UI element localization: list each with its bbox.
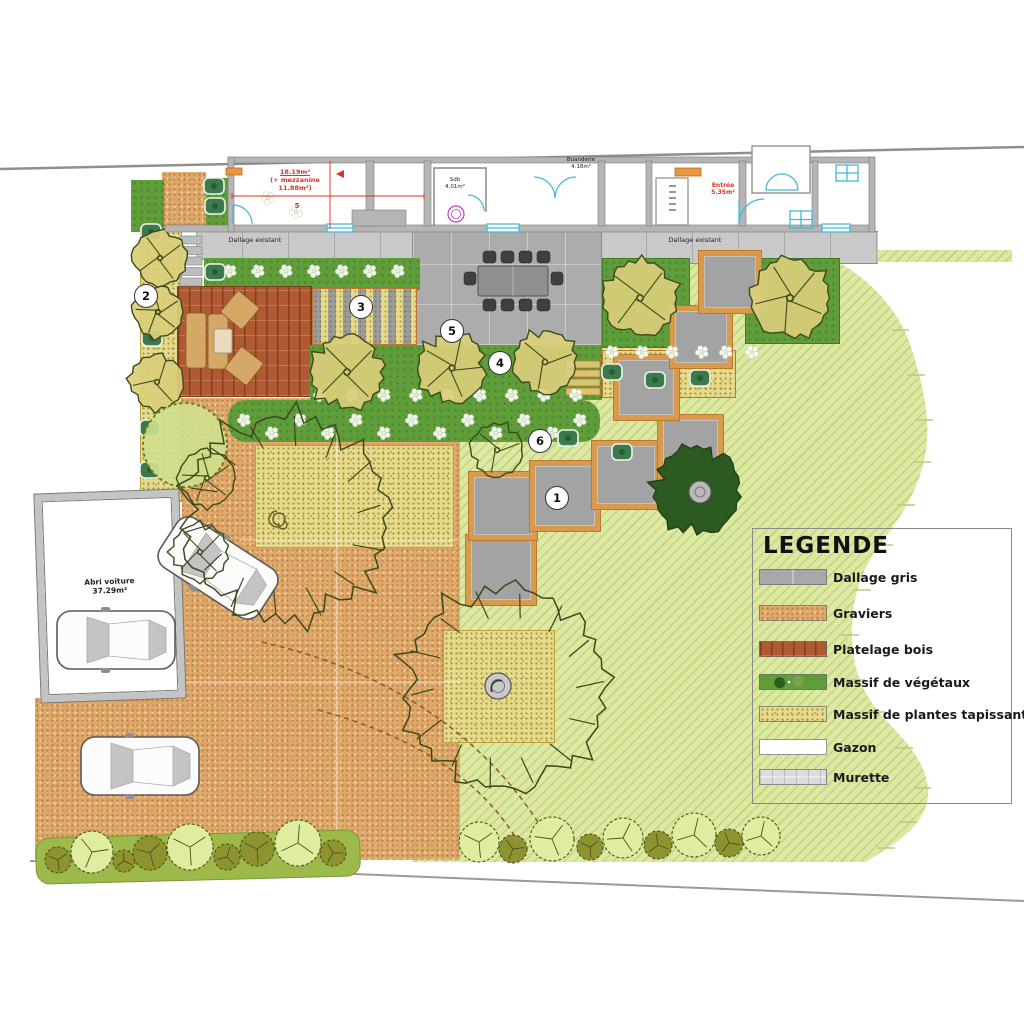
gazon-swatch: [759, 739, 827, 755]
legend-item-murette: Murette: [759, 766, 889, 788]
existing-paving-text-right: Dallage existant: [645, 237, 745, 245]
tree-spike: [569, 640, 589, 656]
plan-shape: [550, 431, 554, 435]
tree-spike: [274, 590, 276, 614]
legend-label: Platelage bois: [833, 642, 933, 657]
legend-panel: LEGENDE Dallage gris Graviers Platelage …: [752, 528, 1012, 804]
porch-bay: [752, 146, 810, 193]
tree-spike: [250, 427, 263, 449]
legend-item-platelage: Platelage bois: [759, 638, 933, 660]
plan-shape: [326, 431, 330, 435]
plan-shape: [414, 393, 418, 397]
flower-icon: [489, 427, 502, 440]
plan-shape: [578, 418, 582, 422]
flower-icon: [573, 414, 586, 427]
existing-paving-text-left: Dallage existant: [205, 237, 305, 245]
feather-tree-icon: [143, 403, 227, 487]
toilet-symbol: [448, 206, 464, 222]
closet: [656, 178, 688, 225]
platelage-swatch: [759, 641, 827, 657]
tree-spike: [476, 591, 489, 618]
tree-spike: [576, 681, 604, 687]
marker-1: 1: [545, 486, 569, 510]
entry-area: 5.35m²: [699, 189, 747, 196]
legend-label: Dallage gris: [833, 570, 917, 585]
tree-spike: [358, 505, 381, 513]
plan-shape: [510, 393, 514, 397]
legend-item-graviers: Graviers: [759, 602, 892, 624]
vegetaux-swatch: [759, 674, 827, 690]
toilet-symbol-inner: [452, 210, 461, 219]
flower-icon: [261, 192, 274, 205]
bush-core: [652, 377, 658, 383]
tree-icon: [513, 330, 577, 395]
legend-label: Massif de végétaux: [833, 675, 970, 690]
room-main-label: 18.19m² (+ mezzanine 11.88m²): [255, 169, 335, 192]
murette-swatch: [759, 769, 827, 785]
deck-furniture: [186, 290, 264, 385]
tree-spike: [353, 545, 384, 551]
car-icon: [151, 508, 286, 628]
bush-core: [212, 269, 218, 275]
tree-branch: [497, 444, 520, 453]
plan-shape: [494, 431, 498, 435]
marker-6: 6: [528, 429, 552, 453]
marker-5-value: 5: [448, 324, 456, 338]
flower-icon: [605, 346, 618, 359]
tree-icon: [310, 334, 385, 411]
flower-icon: [719, 346, 732, 359]
flower-icon: [279, 265, 292, 278]
graviers-swatch: [759, 605, 827, 621]
tree-spike: [411, 689, 434, 695]
bush-core: [212, 203, 218, 209]
marker-4-value: 4: [496, 356, 504, 370]
plan-shape: [101, 668, 110, 673]
flower-icon: [251, 265, 264, 278]
legend-item-vegetaux: Massif de végétaux: [759, 671, 970, 693]
tree-spike: [520, 594, 521, 619]
tree-spike: [441, 619, 460, 633]
marker-2-value: 2: [142, 289, 150, 303]
plan-shape: [396, 269, 400, 273]
marker-3-value: 3: [357, 300, 365, 314]
plan-shape: [270, 431, 274, 435]
north-arrow: [336, 170, 344, 178]
plan-shape: [125, 794, 134, 799]
flower-icon: [745, 346, 758, 359]
existing-paving-label-right: Dallage existant: [645, 237, 745, 245]
plan-shape: [478, 393, 482, 397]
existing-paving-label-left: Dallage existant: [205, 237, 305, 245]
plan-shape: [125, 733, 134, 738]
legend-label: Murette: [833, 770, 889, 785]
plan-shape: [298, 418, 302, 422]
legend-title: LEGENDE: [763, 533, 889, 559]
marker-4: 4: [488, 351, 512, 375]
marker-3: 3: [349, 295, 373, 319]
plan-shape: [382, 393, 386, 397]
flower-icon: [635, 346, 648, 359]
flower-icon: [409, 389, 422, 402]
legend-label: Massif de plantes tapissantes: [833, 707, 1024, 722]
plan-overlay: [0, 0, 1024, 1024]
dining-set: [464, 251, 563, 311]
marker-2: 2: [134, 284, 158, 308]
plan-shape: [670, 350, 674, 354]
tree-icon: [131, 229, 187, 288]
room-number: 5: [290, 202, 304, 210]
flower-icon: [377, 427, 390, 440]
plan-shape: [410, 418, 414, 422]
tree-spike: [521, 757, 533, 782]
legend-item-dallage: Dallage gris: [759, 566, 917, 588]
tree-spike: [452, 745, 461, 766]
plan-shape: [368, 269, 372, 273]
flower-icon: [307, 265, 320, 278]
flower-icon: [695, 346, 708, 359]
flower-icon: [335, 265, 348, 278]
bush-core: [211, 183, 217, 189]
plan-shape: [312, 269, 316, 273]
laundry-area: 4.18m²: [549, 164, 613, 171]
tree-icon: [749, 255, 829, 338]
bush-core: [619, 449, 625, 455]
bush-core: [697, 375, 703, 381]
bathroom-label: Sdb 4.01m²: [433, 177, 477, 190]
plan-shape: [466, 418, 470, 422]
plan-shape: [340, 269, 344, 273]
car-icon: [57, 607, 175, 673]
flower-icon: [461, 414, 474, 427]
plan-shape: [522, 418, 526, 422]
spiral-symbol: [269, 511, 287, 529]
legend-label: Gazon: [833, 740, 876, 755]
plan-shape: [750, 350, 754, 354]
plan-shape: [87, 617, 109, 663]
plan-shape: [382, 431, 386, 435]
plan-shape: [101, 607, 110, 612]
tree-trunk-2: [485, 673, 511, 699]
flower-icon: [237, 414, 250, 427]
plan-shape: [284, 269, 288, 273]
flower-icon: [505, 389, 518, 402]
laundry-name: Buanderie: [549, 157, 613, 164]
plan-shape: [256, 269, 260, 273]
entry-name: Entrée: [699, 182, 747, 189]
flower-icon: [517, 414, 530, 427]
marker-5: 5: [440, 319, 464, 343]
legend-item-gazon: Gazon: [759, 736, 876, 758]
tree-spike: [410, 651, 440, 658]
tree-branch: [205, 479, 226, 495]
bush-core: [609, 369, 615, 375]
bathroom-area: 4.01m²: [433, 184, 477, 191]
room-main-mezzanine2: 11.88m²): [255, 185, 335, 193]
flower-icon: [349, 414, 362, 427]
tree-spike: [417, 720, 442, 739]
laundry-label: Buanderie 4.18m²: [549, 157, 613, 170]
plan-shape: [724, 350, 728, 354]
tree-spike: [191, 488, 217, 492]
dallage-swatch: [759, 569, 827, 585]
plan-shape: [294, 210, 298, 214]
marker-6-value: 6: [536, 434, 544, 448]
legend-item-tapissantes: Massif de plantes tapissantes: [759, 703, 1024, 725]
flower-icon: [391, 265, 404, 278]
plan-shape: [438, 431, 442, 435]
plan-shape: [228, 269, 232, 273]
garden-plan: Abri voiture 37.29m²: [0, 0, 1024, 1024]
plan-shape: [640, 350, 644, 354]
flower-icon: [363, 265, 376, 278]
flower-icon: [265, 427, 278, 440]
tree-spike: [569, 719, 595, 725]
flower-icon: [405, 414, 418, 427]
room-number-value: 5: [290, 202, 304, 210]
plan-shape: [354, 418, 358, 422]
shrub-rows: [35, 813, 780, 884]
plan-shape: [111, 743, 133, 789]
flower-icon: [293, 414, 306, 427]
plan-shape: [610, 350, 614, 354]
legend-label: Graviers: [833, 606, 892, 621]
tree-branch: [491, 449, 495, 473]
tree-spike: [550, 744, 571, 761]
well-symbol: [689, 481, 711, 503]
cars: [57, 508, 285, 799]
plan-shape: [700, 350, 704, 354]
flower-icon: [665, 346, 678, 359]
plan-shape: [574, 393, 578, 397]
plan-shape: [266, 196, 270, 200]
bathroom-name: Sdb: [433, 177, 477, 184]
flower-icon: [433, 427, 446, 440]
bush-core: [565, 435, 571, 441]
plan-shape: [242, 418, 246, 422]
marker-1-value: 1: [553, 491, 561, 505]
tapissantes-swatch: [759, 706, 827, 722]
entry-label: Entrée 5.35m²: [699, 182, 747, 196]
tree-spike: [348, 461, 371, 482]
plan-shape: [153, 512, 284, 625]
tree-spike: [306, 588, 321, 616]
car-icon: [81, 733, 199, 799]
